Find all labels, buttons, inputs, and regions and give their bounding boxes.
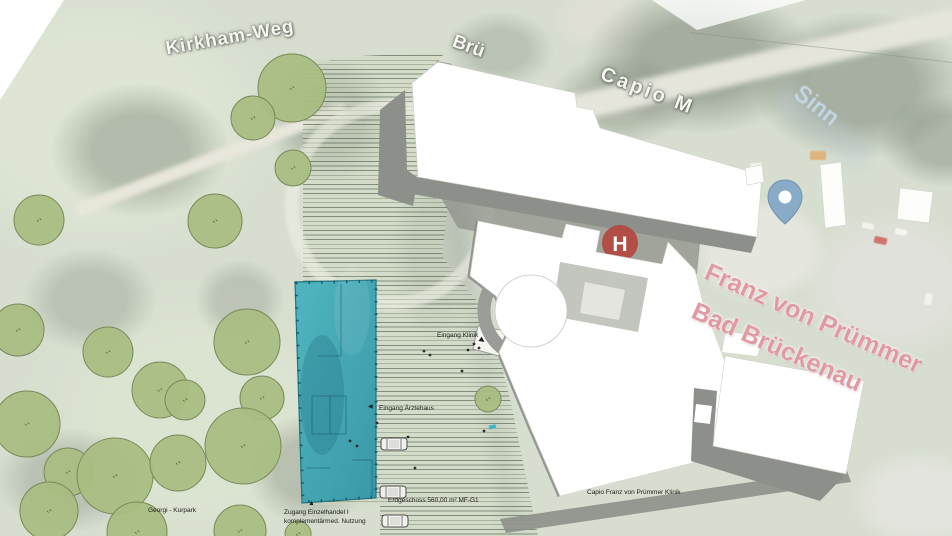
person-dot [429,354,432,357]
label-entrance-clinic: Eingang Klinik [437,331,478,340]
tree [214,505,266,536]
person-dot [478,347,481,350]
tree [205,408,281,484]
building-bottom-right-wedge [722,331,764,356]
entrance-doctors-house-arrow-icon: ◀ [368,403,373,412]
cars-group [380,438,408,527]
person-dot [407,436,410,439]
aerztehaus-new-building [295,265,376,503]
tree [20,482,78,536]
label-ground-floor-area: Erdgeschoss 560,00 m² MF-G1 [388,496,479,505]
person-dot [414,467,417,470]
aerztehaus-highlight [334,265,370,355]
tree [14,195,64,245]
svg-text:H: H [612,233,627,256]
tree [275,150,311,186]
label-access-retail-line1: Zugang Einzelhandel I [284,508,366,517]
person-dot [356,445,359,448]
tree [83,327,133,377]
person-dot [423,350,426,353]
tree [165,380,205,420]
building-bottom-right-notch [694,404,712,424]
location-pin-icon [768,180,802,224]
clinic-shadow-left-end [378,90,418,206]
tree [231,96,275,140]
person-dot [473,343,476,346]
person-dot [461,370,464,373]
label-access-retail-line2: komplementärmed. Nutzung [284,517,366,526]
label-park-name: Georgi - Kurpark [148,506,196,515]
small-building [897,188,933,223]
tree [0,304,44,356]
car-icon [382,515,408,527]
tree [475,386,501,412]
tree [188,194,242,248]
cyan-marker [489,424,497,429]
car-icon [381,438,407,450]
label-access-retail: Zugang Einzelhandel I komplementärmed. N… [284,508,366,527]
tree [214,309,280,375]
clinic-rotunda [495,275,567,347]
label-clinic-building: Capio Franz von Prümmer Klinik [587,488,681,497]
small-building [820,162,846,228]
site-plan-canvas: Kirkham-Weg Brü Capio M Sinn H K [0,0,952,536]
tree [150,435,206,491]
site-plan-drawing: H K [0,0,952,536]
aerztehaus-dark-patch [300,335,344,455]
label-entrance-doctors-house: Eingang Ärztehaus [379,404,434,413]
person-dot [349,440,352,443]
tree [0,391,60,457]
small-building [745,165,764,185]
person-dot [376,422,379,425]
person-dot [467,349,470,352]
person-dot [483,430,486,433]
